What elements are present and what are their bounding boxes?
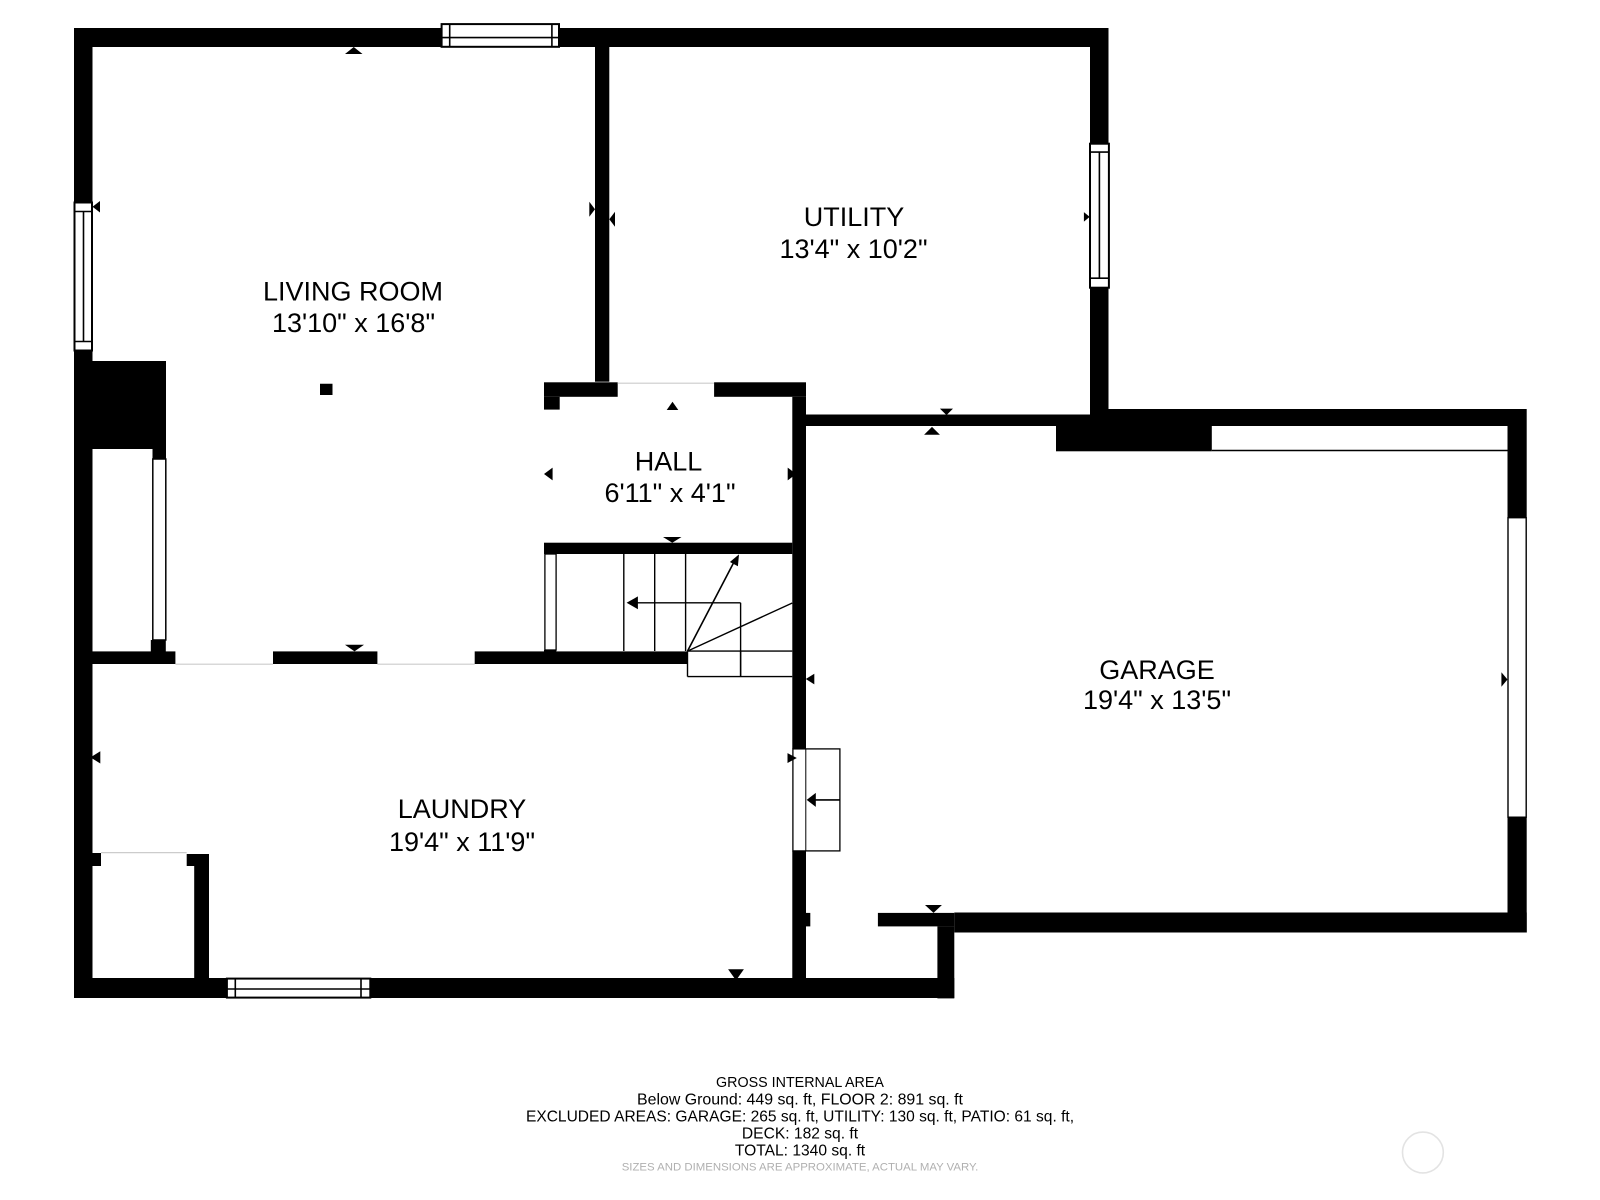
svg-text:13'4" x 10'2": 13'4" x 10'2" [779, 234, 927, 264]
svg-text:19'4" x 11'9": 19'4" x 11'9" [389, 827, 535, 857]
svg-text:Below Ground: 449 sq. ft, FLOO: Below Ground: 449 sq. ft, FLOOR 2: 891 s… [637, 1092, 964, 1109]
svg-text:TOTAL: 1340 sq. ft: TOTAL: 1340 sq. ft [735, 1143, 866, 1160]
svg-text:LIVING ROOM: LIVING ROOM [263, 277, 443, 307]
svg-text:UTILITY: UTILITY [804, 202, 905, 232]
svg-text:HALL: HALL [635, 447, 703, 477]
svg-text:EXCLUDED AREAS: GARAGE: 265 sq: EXCLUDED AREAS: GARAGE: 265 sq. ft, UTIL… [526, 1109, 1074, 1126]
svg-text:DECK: 182 sq. ft: DECK: 182 sq. ft [742, 1126, 859, 1143]
svg-text:13'10" x 16'8": 13'10" x 16'8" [272, 308, 435, 338]
svg-text:LAUNDRY: LAUNDRY [398, 794, 527, 824]
svg-text:GARAGE: GARAGE [1099, 655, 1215, 685]
svg-text:GROSS INTERNAL AREA: GROSS INTERNAL AREA [716, 1075, 884, 1091]
svg-text:6'11" x 4'1": 6'11" x 4'1" [604, 478, 735, 508]
svg-text:19'4" x 13'5": 19'4" x 13'5" [1083, 685, 1231, 715]
svg-text:SIZES AND DIMENSIONS ARE APPRO: SIZES AND DIMENSIONS ARE APPROXIMATE, AC… [622, 1162, 979, 1174]
